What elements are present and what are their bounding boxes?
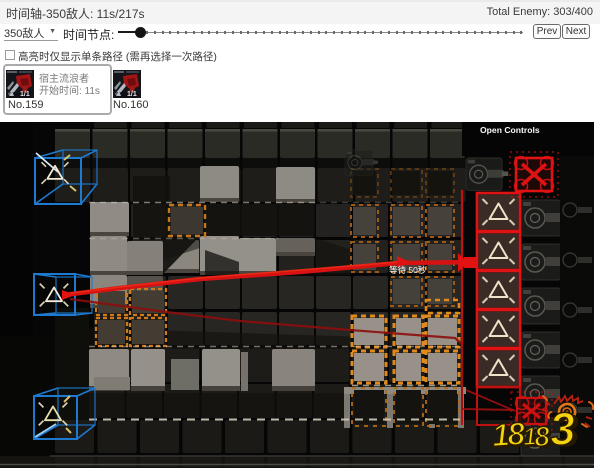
svg-text:等待 50秒: 等待 50秒 <box>389 265 427 275</box>
svg-text:Open Controls: Open Controls <box>480 125 540 135</box>
svg-text:3: 3 <box>548 402 578 456</box>
svg-text:1/1: 1/1 <box>127 91 137 98</box>
svg-text:1/1: 1/1 <box>20 91 30 98</box>
